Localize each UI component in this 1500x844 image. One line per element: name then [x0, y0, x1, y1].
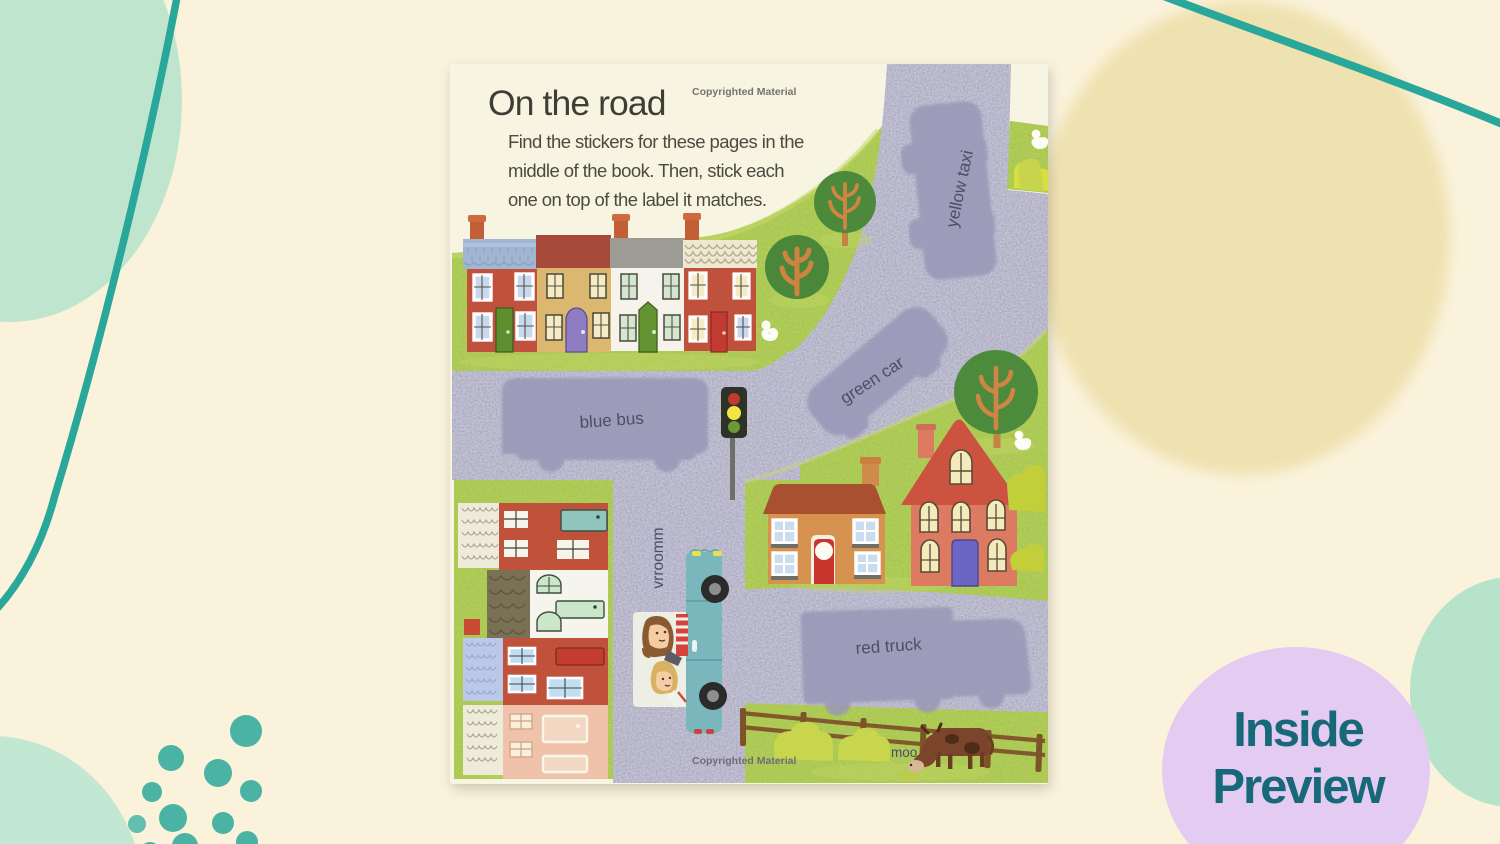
svg-text:middle of the book. Then, stic: middle of the book. Then, stick each [508, 160, 784, 181]
svg-text:Find the stickers for these pa: Find the stickers for these pages in the [508, 131, 804, 152]
svg-text:Preview: Preview [1212, 760, 1386, 814]
svg-text:one on top of the label it mat: one on top of the label it matches. [508, 189, 766, 210]
svg-text:Copyrighted Material: Copyrighted Material [692, 755, 797, 767]
svg-text:Copyrighted Material: Copyrighted Material [692, 86, 797, 98]
svg-text:Inside: Inside [1233, 703, 1363, 757]
svg-text:vrroomm: vrroomm [650, 527, 667, 588]
svg-text:On the road: On the road [488, 83, 666, 123]
svg-text:moo: moo [891, 745, 917, 760]
